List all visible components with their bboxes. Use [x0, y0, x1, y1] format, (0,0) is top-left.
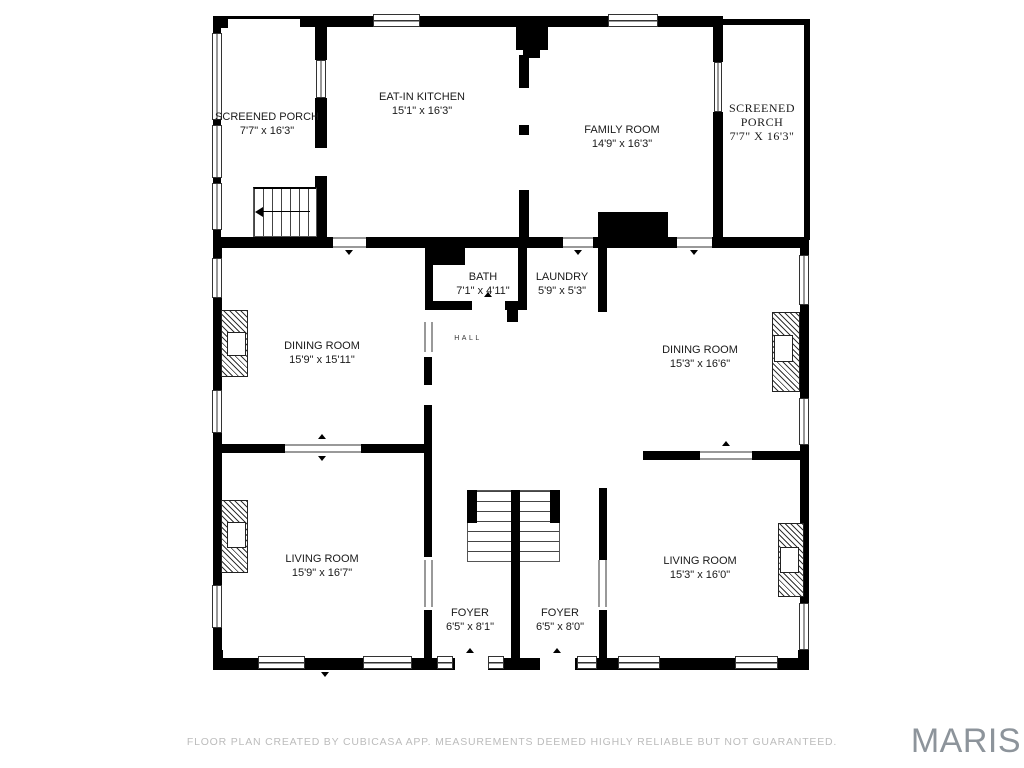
wall: [519, 55, 529, 88]
room-label-bath: BATH 7'1" x 4'11": [456, 271, 509, 298]
window-symbol: [316, 60, 326, 98]
room-dims: 15'9" x 15'11": [284, 354, 360, 368]
window-symbol: [373, 14, 420, 27]
room-name: LIVING ROOM: [663, 555, 736, 569]
room-dims: 7'7" x 16'3": [215, 125, 319, 139]
door-tick: [690, 250, 698, 255]
window-symbol: [363, 656, 412, 669]
room-dims: 7'1" x 4'11": [456, 285, 509, 299]
window-symbol: [735, 656, 778, 669]
wall: [598, 240, 607, 312]
room-label-screened-porch-left: SCREENED PORCH 7'7" x 16'3": [215, 111, 319, 138]
room-label-screened-porch-right: SCREENED PORCH 7'7" X 16'3": [729, 101, 795, 143]
window-symbol: [212, 33, 222, 120]
wall: [718, 19, 810, 25]
wall: [424, 405, 432, 557]
room-label-living-room-left: LIVING ROOM 15'9" x 16'7": [285, 553, 358, 580]
room-label-eat-in-kitchen: EAT-IN KITCHEN 15'1" x 16'3": [379, 91, 465, 118]
door-opening: [598, 560, 607, 607]
wall: [713, 16, 723, 62]
room-name: DINING ROOM: [662, 344, 738, 358]
door-post: [519, 125, 529, 135]
room-dims: 15'9" x 16'7": [285, 567, 358, 581]
wall: [467, 490, 477, 523]
room-name: FAMILY ROOM: [584, 124, 659, 138]
window-symbol: [799, 603, 809, 650]
window-symbol: [799, 398, 809, 445]
window-symbol: [608, 14, 658, 27]
window-symbol: [212, 390, 222, 433]
window-symbol: [437, 656, 453, 669]
fireplace-symbol: [227, 332, 246, 356]
room-label-foyer-left: FOYER 6'5" x 8'1": [446, 607, 494, 634]
door-opening: [424, 322, 433, 352]
door-tick: [318, 456, 326, 461]
room-dims: 15'3" x 16'6": [662, 358, 738, 372]
wall: [425, 240, 465, 265]
wall: [804, 19, 810, 240]
window-symbol: [618, 656, 660, 669]
room-dims: 15'1" x 16'3": [379, 105, 465, 119]
door-tick: [466, 648, 474, 653]
window-symbol: [714, 62, 722, 112]
wall: [420, 16, 608, 27]
room-name: FOYER: [536, 607, 584, 621]
door-tick: [345, 250, 353, 255]
wall: [518, 240, 527, 308]
room-label-family-room: FAMILY ROOM 14'9" x 16'3": [584, 124, 659, 151]
window-symbol: [212, 585, 222, 628]
wall: [213, 16, 302, 19]
door-tick: [722, 441, 730, 446]
room-dims: 5'9" x 5'3": [536, 285, 588, 299]
wall: [213, 650, 223, 670]
cased-opening: [700, 451, 752, 460]
maris-watermark: MARIS: [911, 722, 1021, 761]
room-dims: 15'3" x 16'0": [663, 569, 736, 583]
wall: [798, 650, 809, 670]
fireplace-mass: [598, 212, 668, 240]
room-name: SCREENED PORCH: [215, 111, 319, 125]
wall: [300, 16, 373, 27]
door-opening: [563, 237, 593, 248]
door-opening: [677, 237, 712, 248]
door-tick: [574, 250, 582, 255]
room-dims: 14'9" x 16'3": [584, 138, 659, 152]
door-tick: [321, 672, 329, 677]
window-symbol: [212, 183, 222, 230]
room-label-laundry: LAUNDRY 5'9" x 5'3": [536, 271, 588, 298]
room-dims: 6'5" x 8'1": [446, 621, 494, 635]
room-label-living-room-right: LIVING ROOM 15'3" x 16'0": [663, 555, 736, 582]
door-post: [507, 308, 518, 322]
stair-direction-arrow: [255, 207, 263, 217]
room-label-hall: HALL: [454, 335, 482, 342]
wall: [213, 444, 285, 453]
room-name: SCREENED: [729, 101, 795, 115]
room-name: LAUNDRY: [536, 271, 588, 285]
wall: [315, 16, 327, 60]
fireplace-symbol: [774, 335, 793, 362]
wall: [713, 112, 723, 240]
wall: [712, 237, 808, 248]
stair-direction-line: [262, 211, 310, 212]
fireplace-symbol: [227, 522, 246, 548]
room-name: BATH: [456, 271, 509, 285]
wall: [511, 490, 520, 668]
window-symbol: [488, 656, 504, 669]
disclaimer-text: FLOOR PLAN CREATED BY CUBICASA APP. MEAS…: [0, 736, 1024, 748]
window-symbol: [258, 656, 305, 669]
wall: [643, 451, 700, 460]
cased-opening: [285, 444, 361, 453]
wall: [550, 490, 560, 523]
window-symbol: [577, 656, 597, 669]
wall: [424, 357, 432, 385]
room-name: FOYER: [446, 607, 494, 621]
room-name: EAT-IN KITCHEN: [379, 91, 465, 105]
room-dims: 7'7" X 16'3": [729, 129, 795, 143]
chimney: [516, 27, 548, 50]
door-opening: [540, 657, 575, 671]
room-name: LIVING ROOM: [285, 553, 358, 567]
door-tick: [553, 648, 561, 653]
door-tick: [318, 434, 326, 439]
room-name: DINING ROOM: [284, 340, 360, 354]
wall: [213, 237, 333, 248]
wall: [361, 444, 426, 453]
room-label-foyer-right: FOYER 6'5" x 8'0": [536, 607, 584, 634]
wall: [519, 190, 529, 240]
room-label-dining-room-left: DINING ROOM 15'9" x 15'11": [284, 340, 360, 367]
fireplace-symbol: [780, 547, 799, 573]
window-symbol: [212, 258, 222, 298]
door-opening: [333, 237, 366, 248]
door-opening: [455, 657, 488, 671]
room-dims: 6'5" x 8'0": [536, 621, 584, 635]
wall: [658, 16, 718, 27]
room-name: PORCH: [729, 115, 795, 129]
window-symbol: [799, 255, 809, 305]
floor-plan: SCREENED PORCH 7'7" x 16'3" EAT-IN KITCH…: [0, 0, 1024, 768]
room-label-dining-room-right: DINING ROOM 15'3" x 16'6": [662, 344, 738, 371]
wall: [425, 301, 472, 310]
door-opening: [424, 560, 433, 607]
wall: [599, 488, 607, 560]
